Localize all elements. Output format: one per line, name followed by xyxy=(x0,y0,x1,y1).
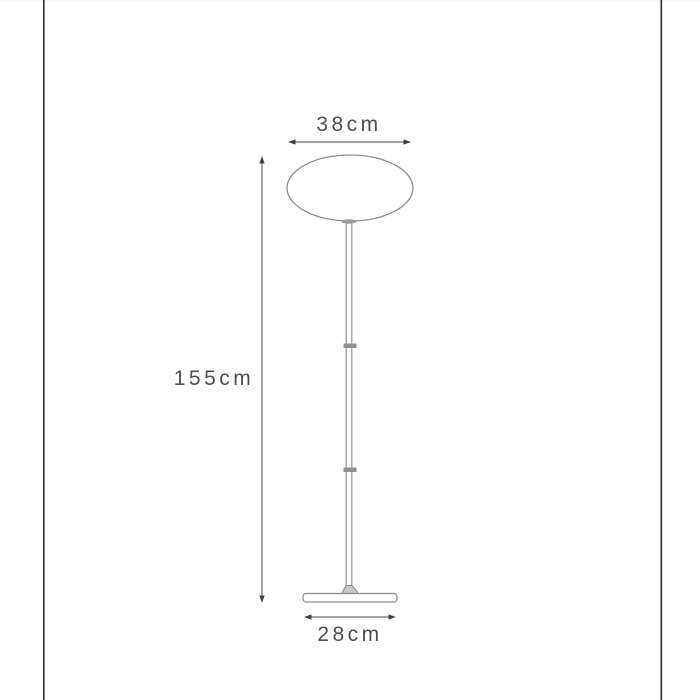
shade-width-arrow-left xyxy=(288,139,296,144)
height-arrow-bottom xyxy=(259,596,264,604)
shade-stem-junction xyxy=(342,219,357,223)
lamp-drawing xyxy=(287,155,413,602)
right-frame-divider xyxy=(661,0,663,700)
product-dimension-diagram: 38cm 155cm 28cm xyxy=(0,0,700,700)
dimension-drawing-canvas: 38cm 155cm 28cm xyxy=(0,0,700,700)
image-top-edge xyxy=(0,0,700,2)
base-width-label: 28cm xyxy=(317,623,382,646)
lamp-base-plate xyxy=(303,594,397,603)
base-width-dimension: 28cm xyxy=(304,614,396,646)
pole-foot-flare xyxy=(342,586,359,594)
base-width-arrow-left xyxy=(304,614,312,619)
shade-width-dimension: 38cm xyxy=(288,113,411,145)
lamp-pole xyxy=(346,220,352,588)
lamp-shade-ellipse xyxy=(287,155,413,221)
height-dimension: 155cm xyxy=(174,156,265,603)
shade-width-arrow-right xyxy=(404,139,412,144)
left-frame-divider xyxy=(43,0,45,700)
pole-joint-lower xyxy=(344,468,357,473)
height-label: 155cm xyxy=(174,367,255,390)
pole-joint-upper xyxy=(344,344,357,349)
height-arrow-top xyxy=(259,156,264,164)
shade-width-label: 38cm xyxy=(316,113,381,136)
base-width-arrow-right xyxy=(389,614,397,619)
